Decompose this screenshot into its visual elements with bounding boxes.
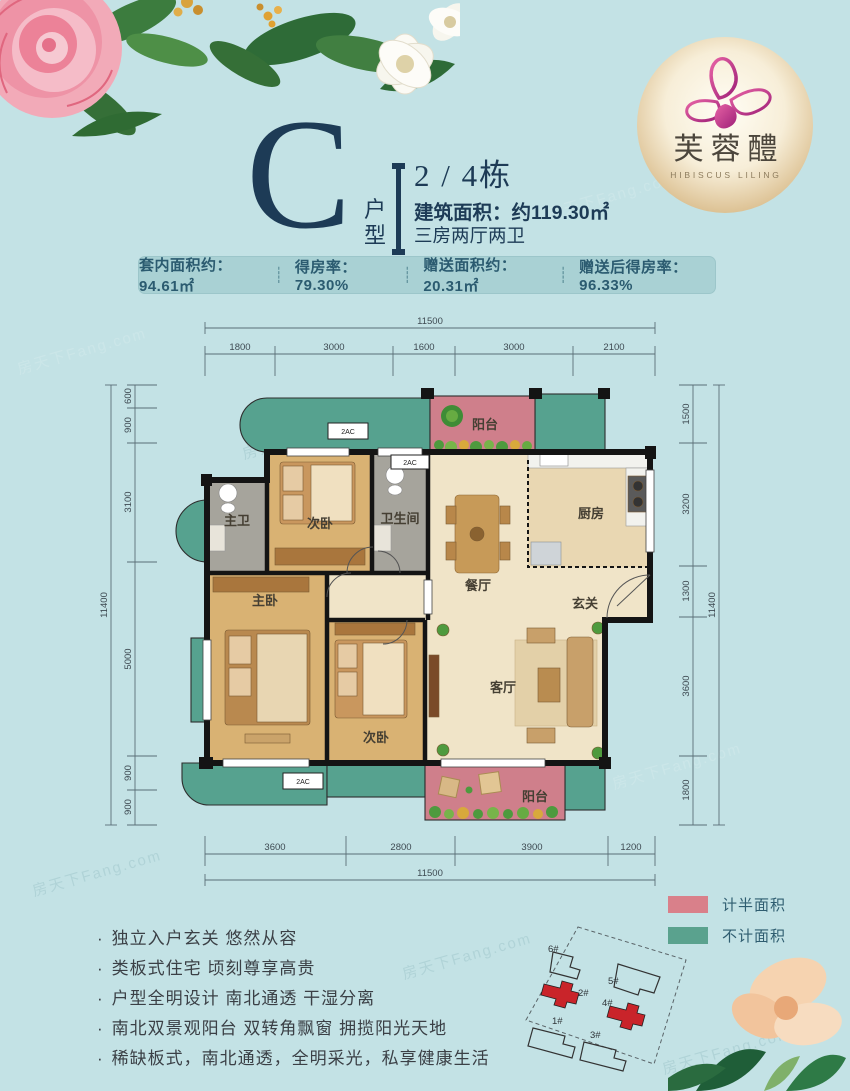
bullet: ·	[97, 1049, 104, 1068]
stat-item: 套内面积约：94.61㎡	[139, 254, 263, 296]
feature-item: ·稀缺板式，南北通透，全明采光，私享健康生活	[97, 1044, 490, 1074]
room-label-master-bath: 主卫	[224, 513, 250, 528]
dim-top: 11500 1800 3000 1600 3000 2100	[205, 316, 655, 376]
building-number: 2 / 4栋	[414, 150, 512, 195]
svg-text:3600: 3600	[264, 842, 285, 853]
unit-type-label: 户型	[364, 197, 390, 250]
svg-text:1200: 1200	[620, 842, 641, 853]
brand-logo: 芙蓉醴 HIBISCUS LILING	[636, 36, 814, 214]
room-label-kitchen: 厨房	[578, 506, 604, 521]
svg-text:5#: 5#	[608, 976, 619, 987]
svg-text:1#: 1#	[552, 1016, 563, 1027]
room-label-master-bedroom: 主卧	[252, 593, 278, 608]
room-label-bathroom: 卫生间	[380, 511, 419, 526]
flower-decoration-bottomright	[668, 938, 850, 1091]
stat-item: 赠送后得房率：96.33%	[579, 256, 715, 294]
dim-left: 600 900 3100 5000 900 900 11400	[99, 385, 157, 825]
svg-text:2100: 2100	[603, 342, 624, 353]
svg-text:2AC: 2AC	[296, 779, 310, 786]
svg-text:2AC: 2AC	[341, 429, 355, 436]
svg-text:1800: 1800	[229, 342, 250, 353]
svg-text:2#: 2#	[578, 988, 589, 999]
svg-text:11500: 11500	[417, 316, 443, 327]
dim-right: 1500 3200 1300 3600 1800 11400	[679, 385, 725, 825]
room-label-balcony-top: 阳台	[472, 417, 498, 432]
poster-page: 房天下Fang.com 房天下Fang.com 房天下Fang.com 房天下F…	[0, 0, 850, 1091]
svg-text:900: 900	[123, 765, 134, 781]
feature-item: ·南北双景观阳台 双转角飘窗 拥揽阳光天地	[97, 1014, 490, 1044]
room-label-dining: 餐厅	[464, 578, 491, 593]
svg-text:3000: 3000	[503, 342, 524, 353]
dim-bottom: 3600 2800 3900 1200 11500	[205, 836, 655, 886]
header-divider-bar	[396, 168, 401, 250]
legend-label: 计半面积	[722, 894, 786, 915]
svg-text:3600: 3600	[681, 675, 692, 696]
room-label-balcony-bottom: 阳台	[522, 789, 548, 804]
building-4-highlight	[607, 1003, 645, 1030]
feature-item: ·户型全明设计 南北通透 干湿分离	[97, 984, 490, 1014]
stat-item: 赠送面积约：20.31㎡	[423, 254, 547, 296]
room-label-bedroom2-top: 次卧	[307, 516, 333, 531]
svg-text:11400: 11400	[707, 592, 718, 618]
svg-text:3100: 3100	[123, 491, 134, 512]
feature-item: ·独立入户玄关 悠然从容	[97, 924, 490, 954]
svg-text:11400: 11400	[99, 592, 110, 618]
svg-text:2AC: 2AC	[403, 460, 417, 467]
stat-item: 得房率：79.30%	[295, 256, 392, 294]
bullet: ·	[97, 1019, 104, 1038]
legend-item-half-area: 计半面积	[668, 892, 786, 916]
stat-divider: ┊	[403, 266, 413, 284]
bullet: ·	[97, 959, 104, 978]
svg-text:6#: 6#	[548, 944, 559, 955]
room-label-living: 客厅	[490, 680, 516, 695]
building-2-highlight	[541, 981, 579, 1008]
room-label-foyer: 玄关	[572, 596, 598, 611]
svg-text:11500: 11500	[417, 868, 443, 879]
room-layout-line: 三房两厅两卫	[414, 222, 525, 248]
logo-name-cn: 芙蓉醴	[674, 133, 785, 166]
area-stats-bar: 套内面积约：94.61㎡ ┊ 得房率：79.30% ┊ 赠送面积约：20.31㎡…	[138, 256, 716, 294]
svg-text:900: 900	[123, 799, 134, 815]
svg-text:900: 900	[123, 417, 134, 433]
svg-text:2800: 2800	[390, 842, 411, 853]
svg-text:1600: 1600	[413, 342, 434, 353]
unit-type-letter: C	[246, 96, 351, 254]
stat-divider: ┊	[559, 266, 569, 284]
floor-plan: 11500 1800 3000 1600 3000 2100 3600 2800…	[95, 310, 755, 895]
stat-divider: ┊	[274, 266, 284, 284]
bullet: ·	[97, 929, 104, 948]
svg-text:1500: 1500	[681, 403, 692, 424]
bullet: ·	[97, 989, 104, 1008]
legend-swatch-pink	[668, 896, 708, 913]
svg-text:5000: 5000	[123, 648, 134, 669]
logo-name-en: HIBISCUS LILING	[670, 170, 781, 180]
feature-list: ·独立入户玄关 悠然从容 ·类板式住宅 顷刻尊享高贵 ·户型全明设计 南北通透 …	[97, 924, 490, 1074]
svg-text:1300: 1300	[681, 580, 692, 601]
svg-text:3200: 3200	[681, 493, 692, 514]
feature-item: ·类板式住宅 顷刻尊享高贵	[97, 954, 490, 984]
svg-text:3000: 3000	[323, 342, 344, 353]
svg-text:3900: 3900	[521, 842, 542, 853]
svg-text:3#: 3#	[590, 1030, 601, 1041]
room-label-bedroom2-bottom: 次卧	[363, 730, 389, 745]
svg-text:600: 600	[123, 388, 134, 404]
built-area-line: 建筑面积：约119.30㎡	[414, 196, 609, 225]
svg-text:1800: 1800	[681, 779, 692, 800]
svg-text:4#: 4#	[602, 998, 613, 1009]
